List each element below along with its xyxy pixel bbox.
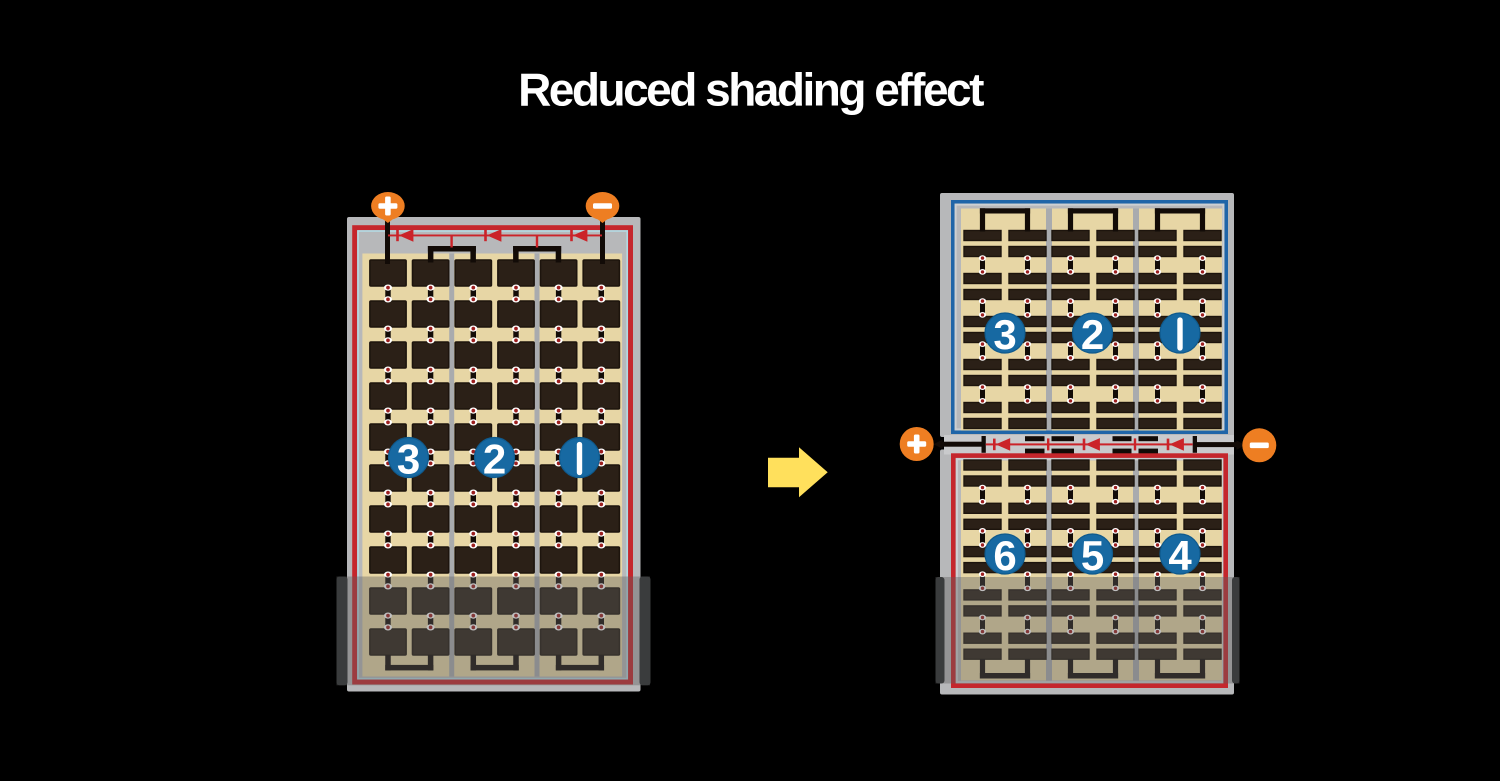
svg-text:5: 5 — [1081, 532, 1104, 579]
svg-text:4: 4 — [1168, 532, 1192, 579]
svg-text:2: 2 — [483, 436, 506, 483]
svg-text:3: 3 — [397, 436, 420, 483]
svg-text:Reduced shading effect: Reduced shading effect — [518, 64, 984, 116]
svg-text:6: 6 — [993, 532, 1016, 579]
svg-text:3: 3 — [993, 311, 1016, 358]
svg-text:2: 2 — [1081, 311, 1104, 358]
